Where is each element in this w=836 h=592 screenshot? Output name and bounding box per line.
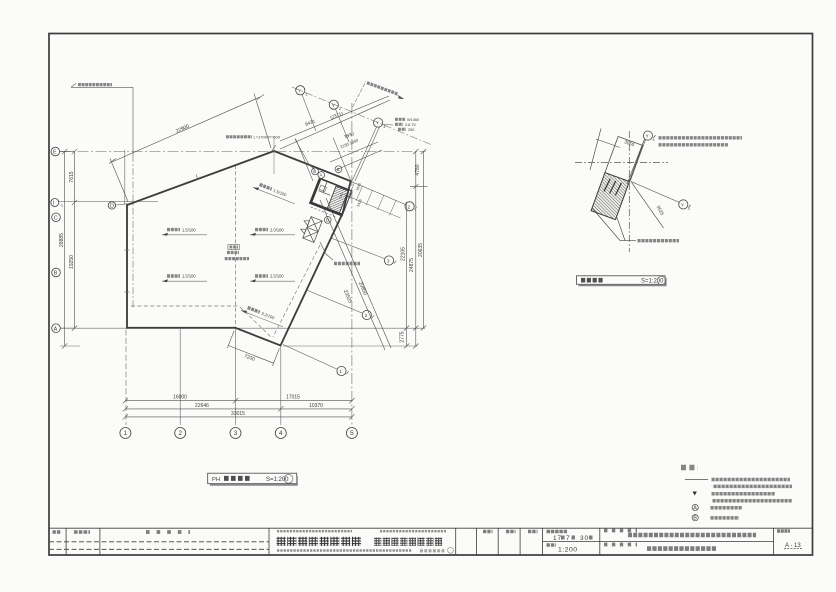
svg-text:B: B [693,516,697,522]
svg-text:250: 250 [408,128,414,132]
svg-text:30: 30 [580,535,589,542]
svg-text:1: 1 [124,430,128,437]
svg-text:4780: 4780 [415,164,421,175]
svg-text:2: 2 [408,204,411,209]
svg-text:3: 3 [234,430,238,437]
svg-text:22105: 22105 [401,247,407,261]
svg-text:3: 3 [383,125,385,129]
svg-text:A: A [54,326,58,332]
svg-text:PH: PH [212,477,220,483]
svg-text:5: 5 [350,430,354,437]
svg-text:2.0/100: 2.0/100 [270,227,284,232]
svg-text:D: D [110,203,114,209]
svg-text:20635: 20635 [418,243,424,257]
svg-text:1.5/100: 1.5/100 [182,274,196,279]
svg-text:24875: 24875 [409,258,415,272]
svg-text:1.5/100: 1.5/100 [182,227,196,232]
svg-text:2: 2 [365,313,368,318]
svg-text:Y: Y [646,134,649,139]
svg-text:1:200: 1:200 [558,547,578,554]
svg-text:C: C [54,215,58,221]
svg-text:I: I [53,201,55,207]
svg-text:7615: 7615 [69,171,75,182]
svg-text:17: 17 [553,535,562,542]
svg-text:4: 4 [279,430,283,437]
svg-text:Y: Y [298,88,301,93]
svg-text:28885: 28885 [59,233,65,247]
svg-text:16000: 16000 [173,395,187,401]
svg-text:A - 13: A - 13 [785,543,801,549]
svg-text:2.5/100: 2.5/100 [270,274,284,279]
svg-text:22646: 22646 [195,403,209,409]
svg-text:A: A [320,173,323,178]
svg-text:B: B [54,271,58,277]
svg-text:1: 1 [339,369,342,374]
svg-text:Y: Y [376,121,379,126]
svg-text:A: A [693,506,697,512]
svg-text:10370: 10370 [309,403,323,409]
svg-text:2:8.75: 2:8.75 [405,123,416,127]
svg-text:17015: 17015 [286,395,300,401]
svg-text:1: 1 [306,93,308,97]
svg-text:3: 3 [387,259,390,264]
svg-text:7: 7 [566,535,571,542]
svg-text:Y: Y [681,203,684,208]
svg-text:B: B [313,169,316,174]
svg-text:Y: Y [332,103,335,108]
svg-text:19250: 19250 [69,255,75,269]
svg-text:3: 3 [653,138,655,142]
svg-text:2: 2 [178,430,182,437]
svg-text:33015: 33015 [231,411,245,417]
svg-text:W1080: W1080 [407,118,419,122]
svg-text:2775: 2775 [399,331,405,342]
svg-text:E: E [53,150,57,156]
svg-text:L=1700·P=500: L=1700·P=500 [254,135,281,140]
svg-text:S=1:200: S=1:200 [641,279,664,285]
